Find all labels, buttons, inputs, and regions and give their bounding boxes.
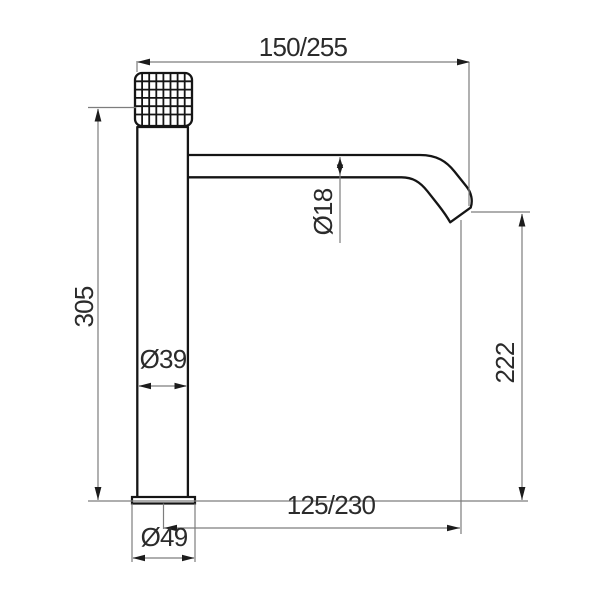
arrow-down-icon: [519, 487, 526, 500]
dimension-label-base-diameter: Ø49: [141, 522, 188, 552]
dimension-spout-height: 222: [471, 212, 530, 500]
dimension-label-total-height: 305: [69, 286, 99, 327]
arrow-up-icon: [95, 109, 102, 122]
faucet-base-flange: [132, 497, 195, 504]
faucet-handle-knob: [135, 73, 192, 126]
arrow-left-icon: [137, 59, 150, 66]
dimension-spout-reach: 125/230: [164, 220, 462, 534]
faucet-outline: [132, 73, 472, 504]
dimension-label-spout-reach: 125/230: [287, 490, 376, 520]
dimension-label-body-diameter: Ø39: [140, 344, 187, 374]
arrow-right-icon: [447, 525, 460, 532]
dimension-label-spout-diameter: Ø18: [308, 188, 338, 235]
dimension-label-top-width: 150/255: [259, 32, 348, 62]
arrow-right-icon: [457, 59, 470, 66]
faucet-dimension-drawing: 150/255 305 Ø18 Ø39 222 125/230: [0, 0, 600, 600]
dimension-total-height: 305: [69, 108, 136, 501]
arrow-up-icon: [519, 214, 526, 227]
arrow-down-icon: [95, 487, 102, 500]
technical-drawing-canvas: 150/255 305 Ø18 Ø39 222 125/230: [0, 0, 600, 600]
dimension-label-spout-height: 222: [490, 342, 520, 383]
arrow-left-icon: [133, 555, 146, 562]
arrow-right-icon: [182, 555, 195, 562]
faucet-body-column: [137, 127, 188, 498]
